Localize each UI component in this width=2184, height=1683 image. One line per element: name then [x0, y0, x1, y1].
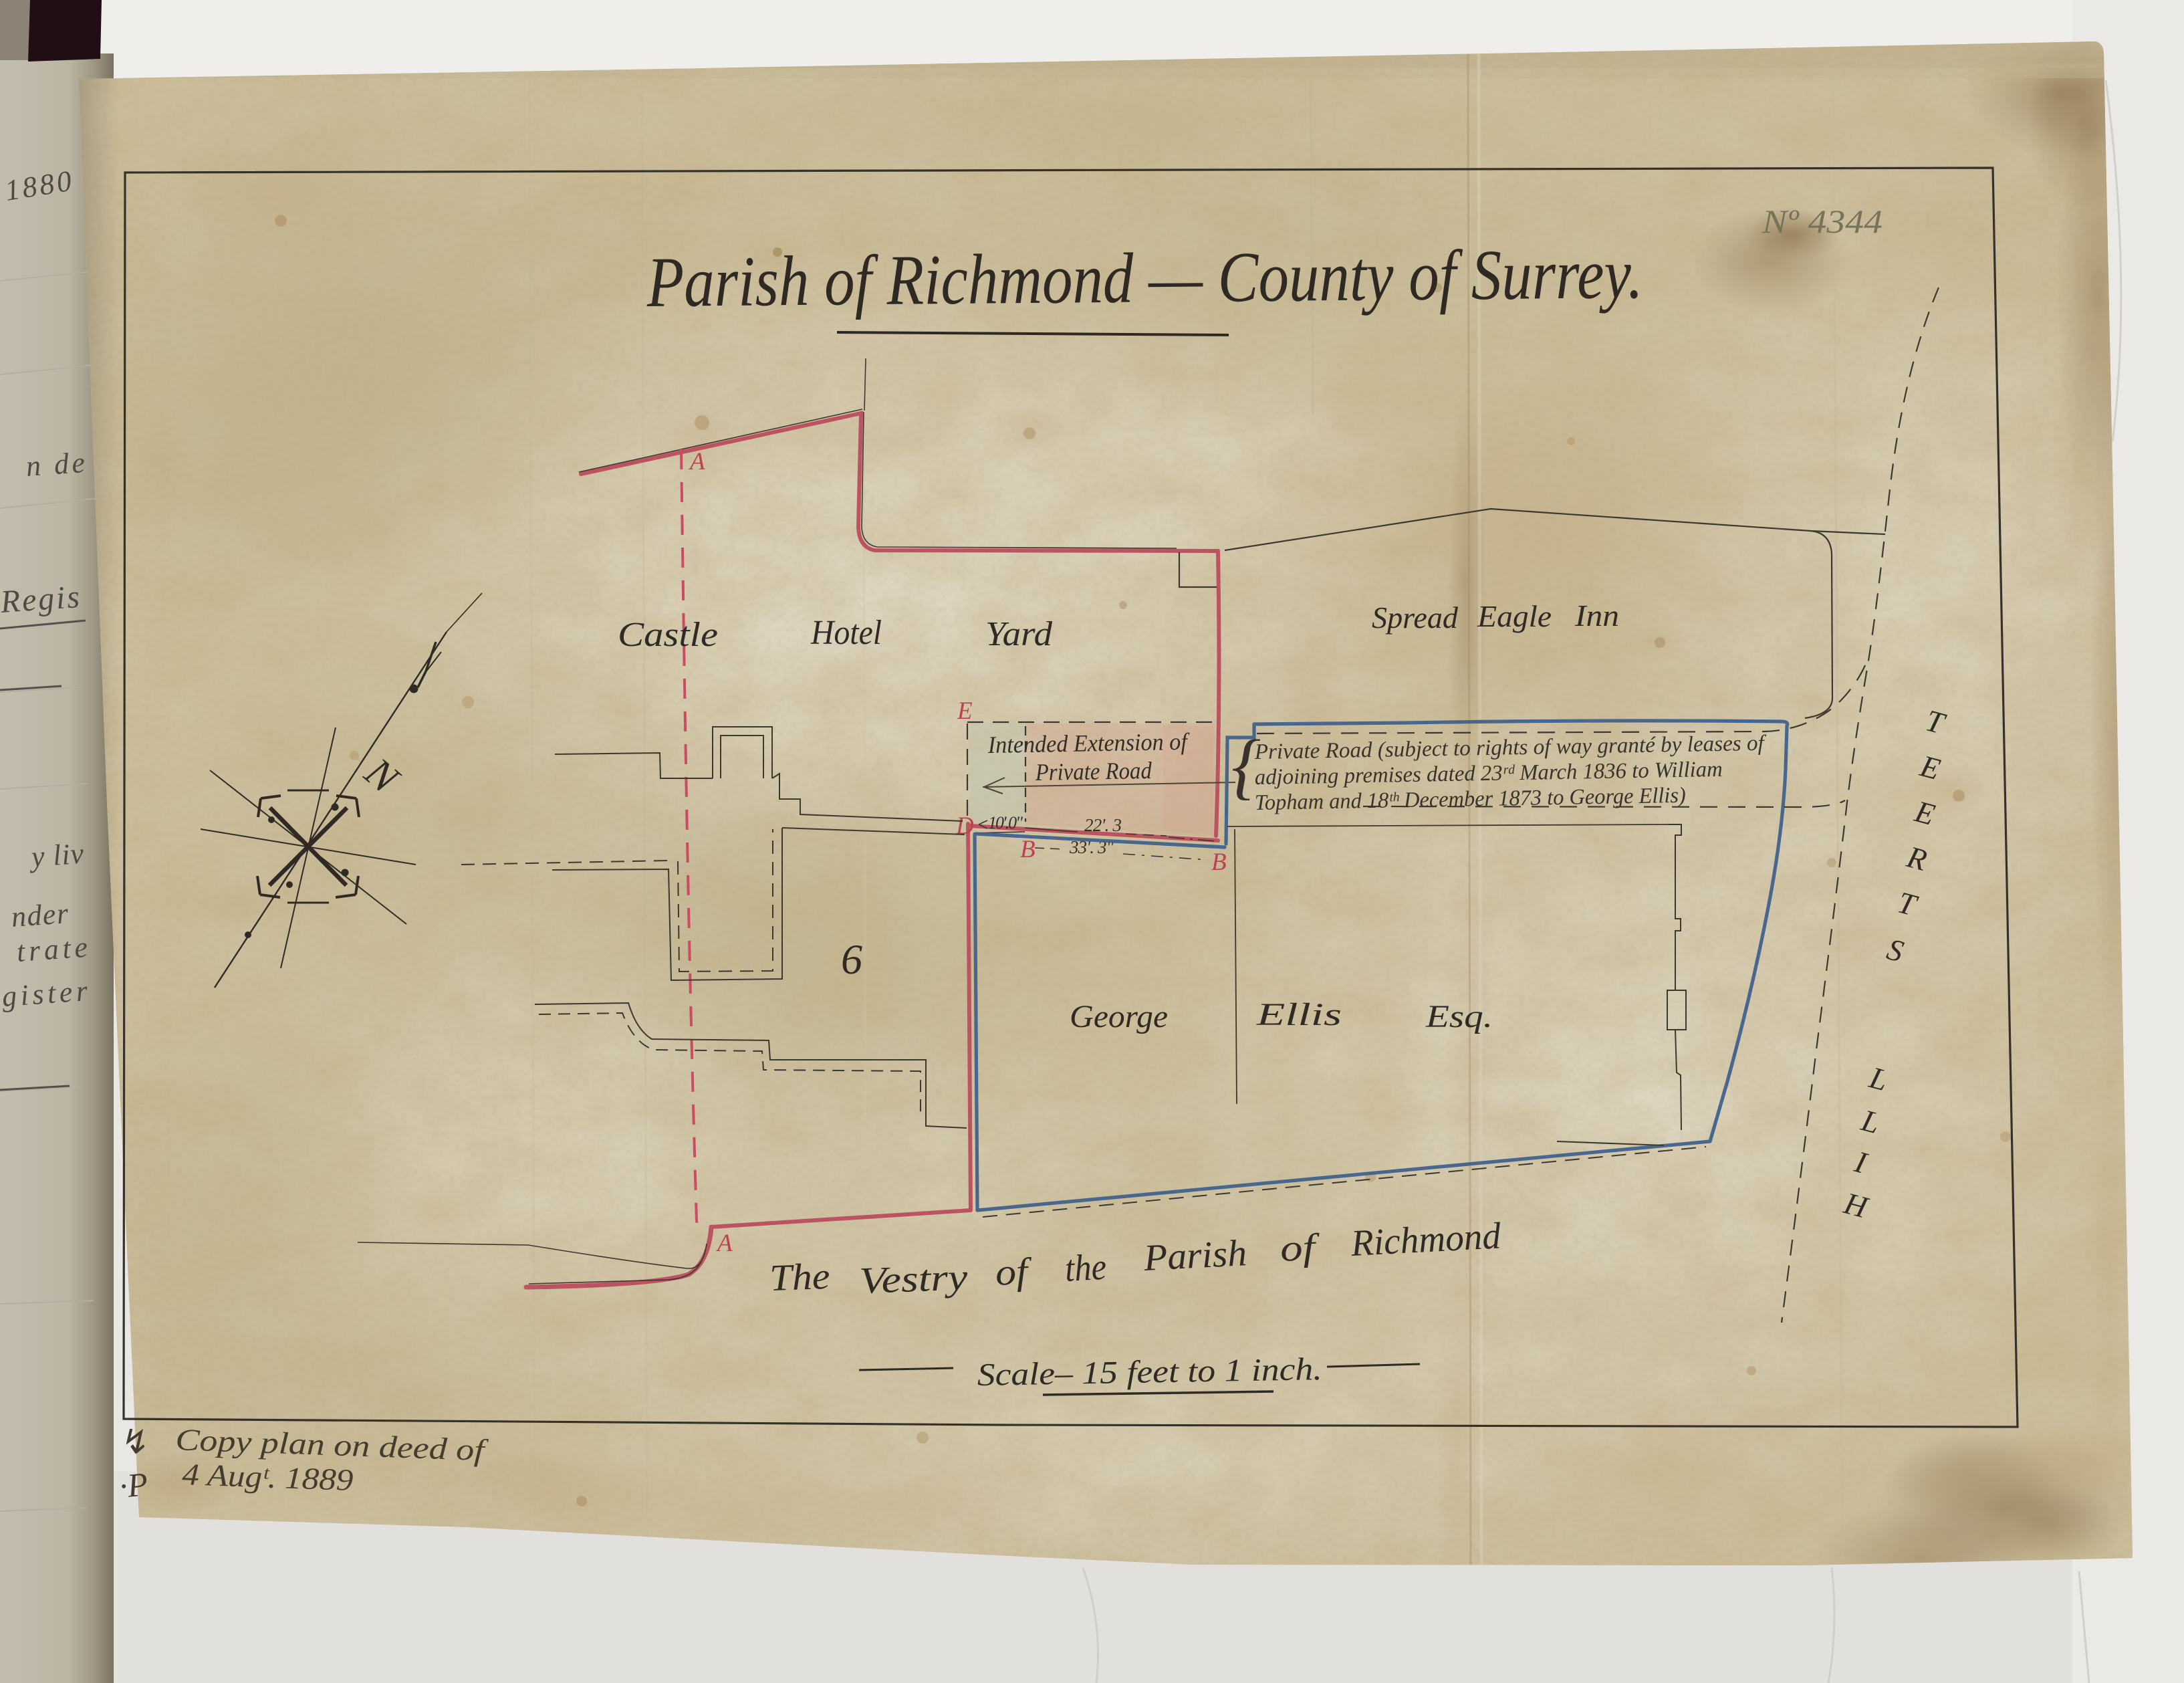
svg-text:Parish: Parish [1142, 1232, 1247, 1279]
svg-text:n de: n de [25, 446, 86, 483]
svg-text:4 Augᵗ. 1889: 4 Augᵗ. 1889 [182, 1457, 354, 1497]
svg-text:Esq.: Esq. [1425, 999, 1493, 1034]
svg-text:·P: ·P [117, 1465, 150, 1505]
svg-text:10'.0": 10'.0" [988, 813, 1023, 832]
svg-text:Richmond: Richmond [1349, 1215, 1502, 1264]
svg-text:Parish of Richmond — County of: Parish of Richmond — County of Surrey. [646, 235, 1643, 322]
svg-text:y liv: y liv [27, 837, 85, 874]
svg-text:Hotel: Hotel [810, 614, 882, 652]
svg-text:George: George [1070, 999, 1168, 1034]
svg-text:Inn: Inn [1574, 598, 1619, 633]
svg-text:Private Road: Private Road [1035, 757, 1152, 786]
svg-text:Nº 4344: Nº 4344 [1762, 203, 1883, 240]
svg-text:22'. 3: 22'. 3 [1084, 815, 1122, 835]
svg-text:The: The [769, 1256, 830, 1299]
svg-text:E: E [957, 697, 973, 725]
svg-text:D: D [955, 812, 974, 840]
svg-text:B: B [1020, 836, 1036, 863]
svg-text:B: B [1211, 849, 1227, 876]
svg-text:Intended Extension of: Intended Extension of [987, 728, 1190, 758]
svg-text:Regis: Regis [0, 579, 80, 620]
svg-text:Spread: Spread [1372, 600, 1459, 635]
svg-text:Vestry: Vestry [858, 1256, 968, 1302]
svg-text:Scale– 15 feet to 1 inch.: Scale– 15 feet to 1 inch. [977, 1351, 1322, 1393]
svg-text:Ellis: Ellis [1256, 997, 1342, 1032]
svg-text:A: A [715, 1230, 733, 1257]
svg-text:6: 6 [841, 935, 862, 983]
svg-text:A: A [688, 448, 705, 475]
svg-text:nder: nder [10, 897, 70, 933]
svg-text:the: the [1064, 1246, 1107, 1290]
svg-text:Yard: Yard [985, 615, 1053, 653]
svg-text:Eagle: Eagle [1477, 599, 1552, 633]
svg-text:Castle: Castle [618, 616, 718, 654]
